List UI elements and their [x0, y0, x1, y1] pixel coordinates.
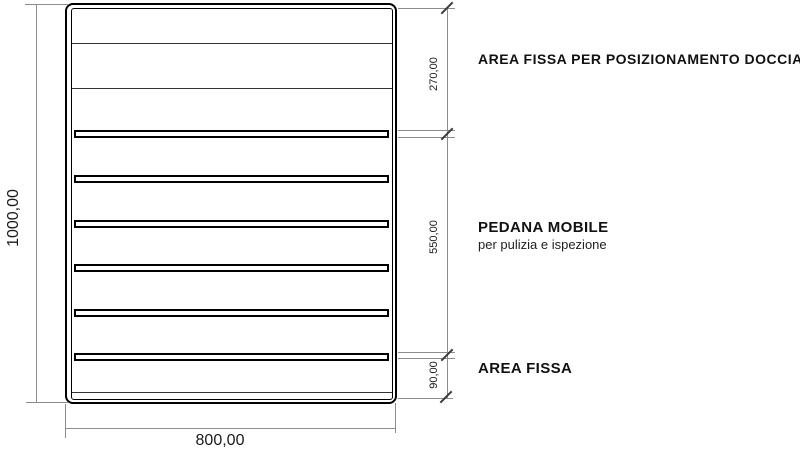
slat-bar [74, 175, 389, 183]
slat-bar [74, 220, 389, 228]
top-section-label: AREA FISSA PER POSIZIONAMENTO DOCCIA [478, 51, 800, 67]
slat-bar [74, 309, 389, 317]
bottom-section-label: AREA FISSA [478, 360, 572, 377]
section-dimension-line [447, 8, 448, 398]
middle-section-dimension-value: 550,00 [427, 207, 441, 267]
bottom-section-dimension-value: 90,00 [427, 345, 441, 405]
plank-divider [72, 392, 392, 393]
middle-section-label: PEDANA MOBILE [478, 219, 608, 236]
width-extension-left [65, 404, 66, 438]
section-extension-b1b [398, 137, 455, 138]
drawing-stage: 1000,00 800,00 270,00 550,00 90,00 AREA … [0, 0, 800, 461]
middle-section-sublabel: per pulizia e ispezione [478, 237, 607, 252]
plank-divider [72, 88, 392, 89]
height-dimension-line [36, 4, 37, 403]
plank-divider [72, 43, 392, 44]
slat-bar [74, 264, 389, 272]
top-section-dimension-value: 270,00 [427, 44, 441, 104]
slat-bar [74, 130, 389, 138]
height-dimension-value: 1000,00 [5, 178, 23, 258]
height-extension-top [25, 4, 68, 5]
section-extension-b1a [398, 130, 455, 131]
width-dimension-line [65, 428, 396, 429]
slat-bar [74, 353, 389, 361]
slat-layer [0, 0, 800, 461]
width-dimension-value: 800,00 [170, 432, 270, 450]
height-extension-bottom [26, 402, 68, 403]
width-extension-right [395, 403, 396, 433]
